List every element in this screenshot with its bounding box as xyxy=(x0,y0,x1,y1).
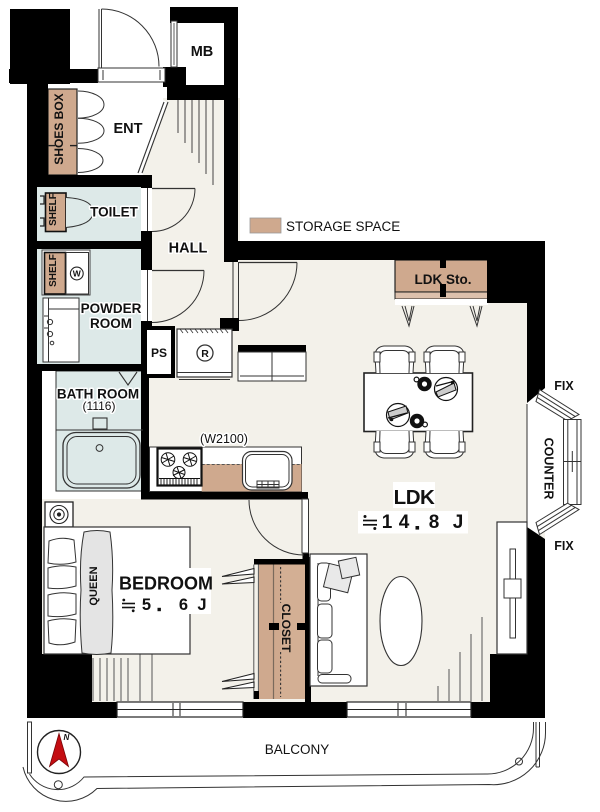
svg-text:6: 6 xyxy=(179,596,188,614)
svg-text:FIX: FIX xyxy=(554,379,574,393)
svg-text:SHELF: SHELF xyxy=(48,193,59,226)
svg-text:TOILET: TOILET xyxy=(90,205,139,220)
svg-text:1: 1 xyxy=(382,512,393,533)
svg-text:PS: PS xyxy=(151,346,167,360)
svg-text:(1116): (1116) xyxy=(83,399,116,413)
svg-text:CLOSET: CLOSET xyxy=(279,604,293,653)
svg-text:W: W xyxy=(73,269,82,279)
svg-text:8: 8 xyxy=(429,512,440,533)
svg-text:N: N xyxy=(64,733,70,742)
svg-text:ENT: ENT xyxy=(114,121,143,137)
svg-text:FIX: FIX xyxy=(554,539,574,553)
svg-text:QUEEN: QUEEN xyxy=(88,566,100,605)
svg-text:LDK Sto.: LDK Sto. xyxy=(415,272,472,287)
svg-text:LDK: LDK xyxy=(394,486,435,509)
svg-text:(W2100): (W2100) xyxy=(200,432,248,446)
svg-text:J: J xyxy=(453,512,464,533)
svg-text:ROOM: ROOM xyxy=(90,316,132,331)
svg-text:POWDER: POWDER xyxy=(81,301,142,316)
svg-text:SHELF: SHELF xyxy=(48,254,59,287)
svg-text:MB: MB xyxy=(191,44,214,60)
svg-text:STORAGE SPACE: STORAGE SPACE xyxy=(286,219,400,234)
svg-text:BEDROOM: BEDROOM xyxy=(119,574,213,594)
svg-text:5: 5 xyxy=(142,596,151,614)
svg-text:COUNTER: COUNTER xyxy=(542,438,556,500)
svg-text:HALL: HALL xyxy=(169,241,208,257)
svg-text:BALCONY: BALCONY xyxy=(265,742,330,757)
svg-text:4: 4 xyxy=(399,512,410,533)
svg-text:SHOES BOX: SHOES BOX xyxy=(52,93,66,164)
svg-text:J: J xyxy=(197,596,206,614)
svg-text:R: R xyxy=(201,348,209,360)
